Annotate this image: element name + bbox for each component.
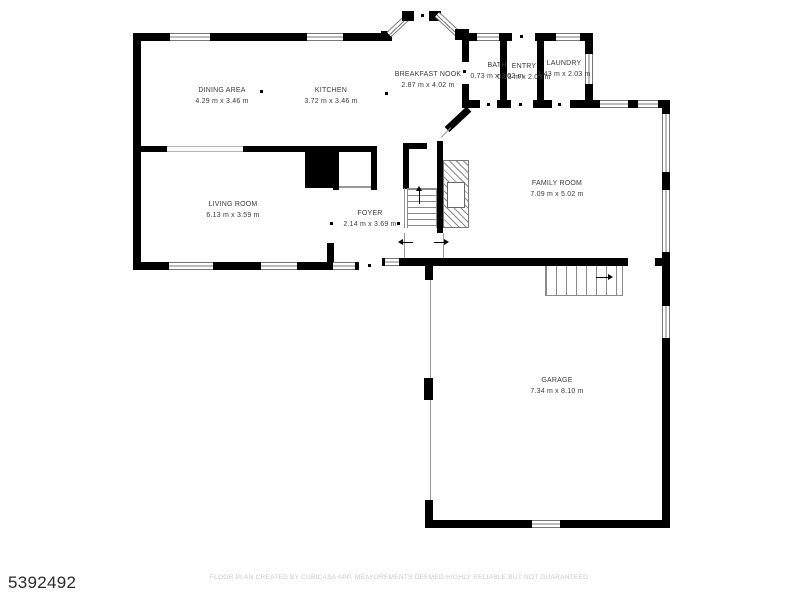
window-foyer-south (385, 258, 399, 266)
room-name: LIVING ROOM (206, 199, 259, 210)
room-dims: 7.34 m x 8.10 m (530, 386, 583, 397)
wall-garage-west-stub-mid (424, 378, 433, 400)
opening-marker-foyer-right (397, 222, 400, 225)
room-name: FAMILY ROOM (530, 178, 583, 189)
stairs-direction-arrow (608, 274, 613, 280)
closet-front-line (339, 186, 371, 188)
stair-landing-box (447, 182, 465, 208)
door-marker-front-entrance (368, 264, 371, 267)
wall-block-south-3 (533, 100, 552, 108)
room-name: LAUNDRY (537, 58, 590, 69)
window-family-north-2 (638, 100, 658, 108)
door-marker-bath (487, 103, 490, 106)
wall-stair-west (403, 143, 409, 189)
door-arrow-right (444, 239, 449, 245)
stairs-arrow-stem (596, 277, 608, 278)
room-label-breakfast-nook: BREAKFAST NOOK 2.87 m x 4.02 m (395, 69, 461, 91)
room-label-dining: DINING AREA 4.29 m x 3.46 m (195, 85, 248, 107)
stair-up-arrow-stem (419, 191, 420, 204)
wall-bath-west-upper (462, 41, 469, 62)
window-living-south-1 (169, 262, 213, 270)
window-dining-north (170, 33, 210, 41)
room-dims: 3.72 m x 3.46 m (304, 96, 357, 107)
wall-block-south-2 (497, 100, 511, 108)
staircase-main (407, 188, 437, 228)
window-family-north-1 (600, 100, 628, 108)
plan-id: 5392492 (8, 573, 76, 593)
window-living-south-3 (333, 262, 355, 270)
wall-garage-west-stub-top (425, 266, 433, 280)
window-kitchen-north (307, 33, 343, 41)
window-family-east-1 (662, 114, 670, 172)
room-label-kitchen: KITCHEN 3.72 m x 3.46 m (304, 85, 357, 107)
room-dims: 1.43 m x 2.03 m (537, 69, 590, 80)
opening-marker-dining-kitchen (260, 90, 263, 93)
room-dims: 2.14 m x 3.69 m (343, 219, 396, 230)
wall-closet-west (333, 146, 339, 190)
opening-marker-foyer-left (330, 222, 333, 225)
room-label-foyer: FOYER 2.14 m x 3.69 m (343, 208, 396, 230)
stair-side-line (404, 188, 405, 228)
wall-family-south (425, 258, 628, 266)
door-arrow-right-stem (434, 242, 444, 243)
room-name: BREAKFAST NOOK (395, 69, 461, 80)
room-label-laundry: LAUNDRY 1.43 m x 2.03 m (537, 58, 590, 80)
room-dims: 4.29 m x 3.46 m (195, 96, 248, 107)
room-dims: 2.87 m x 4.02 m (395, 80, 461, 91)
stairs-to-garage (545, 266, 623, 296)
wall-closet-east (371, 146, 377, 190)
door-line-foyer-right (443, 233, 444, 258)
fireplace-block (305, 150, 333, 188)
window-garage-south (532, 520, 560, 528)
opening-marker-kitchen-nook (385, 92, 388, 95)
floor-plan: DINING AREA 4.29 m x 3.46 m KITCHEN 3.72… (0, 0, 800, 600)
window-living-south-2 (261, 262, 297, 270)
room-name: DINING AREA (195, 85, 248, 96)
window-garage-east (662, 306, 670, 338)
room-label-living: LIVING ROOM 6.13 m x 3.59 m (206, 199, 259, 221)
room-label-family: FAMILY ROOM 7.09 m x 5.02 m (530, 178, 583, 200)
cased-opening-living-dining (167, 146, 243, 152)
door-marker-bay (421, 14, 424, 17)
door-marker-entry-exterior (520, 35, 523, 38)
door-arrow-left-stem (403, 242, 413, 243)
wall-family-south-corner (655, 258, 670, 266)
door-marker-laundry (558, 103, 561, 106)
room-name: KITCHEN (304, 85, 357, 96)
door-marker-entry (519, 103, 522, 106)
window-laundry-north (556, 33, 580, 41)
room-name: GARAGE (530, 375, 583, 386)
wall-bay-corner-nw (402, 11, 414, 21)
wall-living-south (133, 262, 359, 270)
footer-disclaimer: FLOOR PLAN CREATED BY CUBICASA APP. MEAS… (210, 574, 590, 581)
window-family-east-2 (662, 190, 670, 252)
window-bath-north (477, 33, 499, 41)
door-marker-bath-west (463, 70, 466, 73)
room-label-garage: GARAGE 7.34 m x 8.10 m (530, 375, 583, 397)
wall-living-north-west (133, 146, 167, 152)
room-name: FOYER (343, 208, 396, 219)
door-line-foyer-left (404, 233, 405, 258)
room-dims: 7.09 m x 5.02 m (530, 189, 583, 200)
wall-foyer-west-stub (327, 243, 334, 262)
wall-garage-west-stub-bottom (425, 500, 433, 528)
room-dims: 6.13 m x 3.59 m (206, 210, 259, 221)
